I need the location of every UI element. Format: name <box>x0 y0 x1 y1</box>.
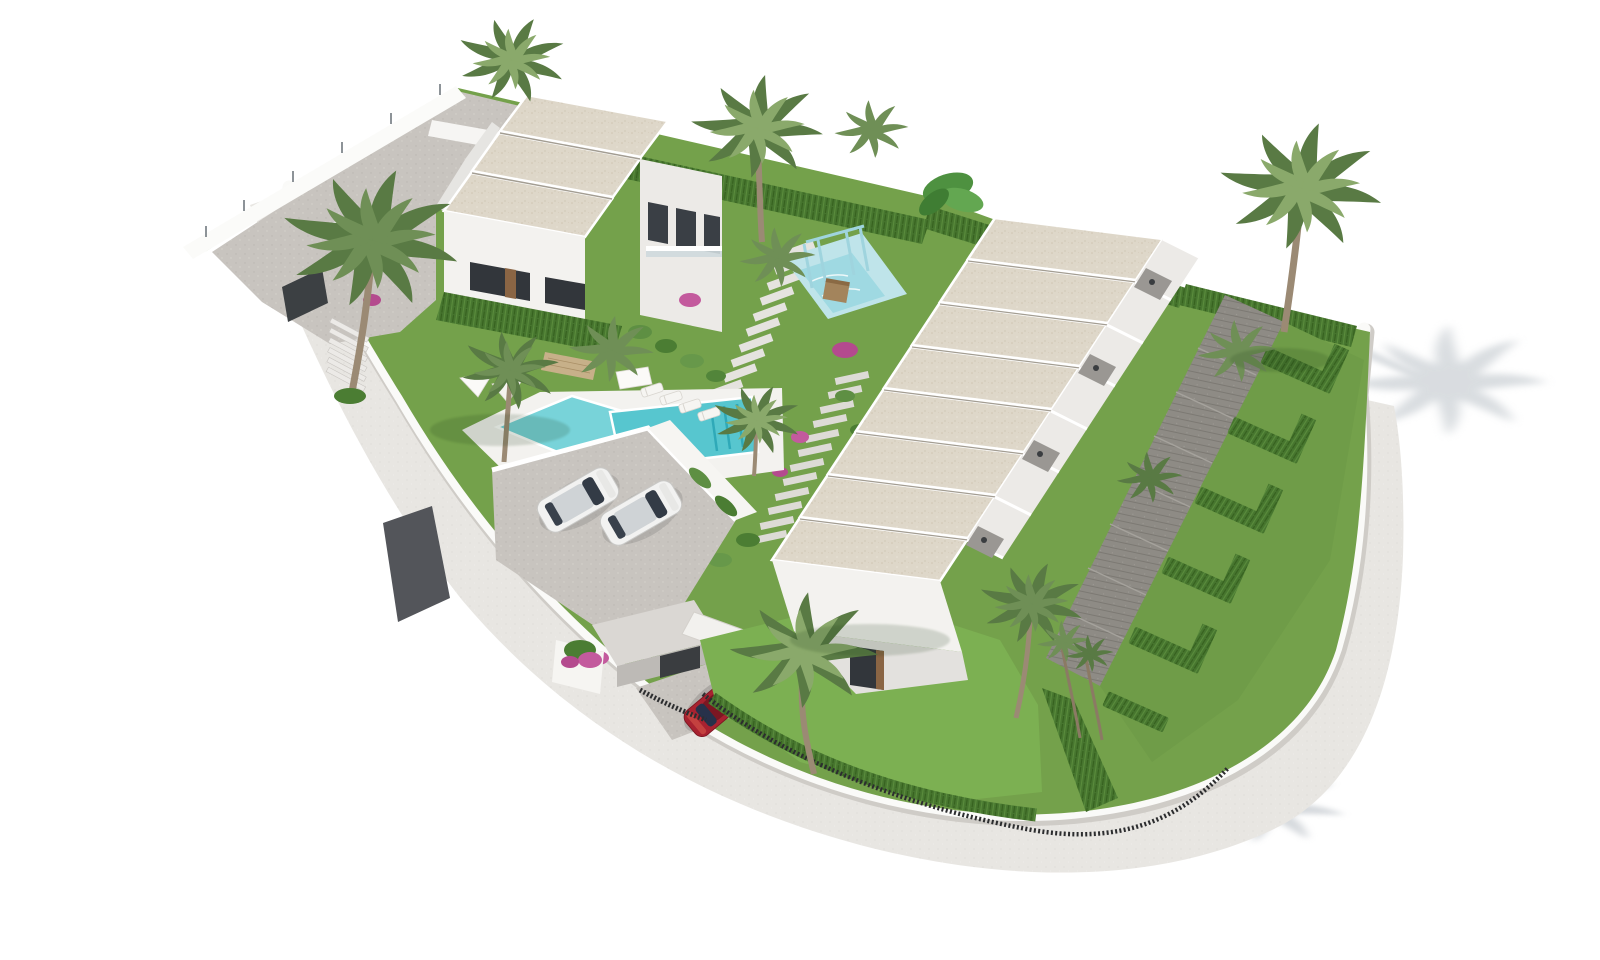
palm-large-right <box>1201 104 1403 268</box>
play-tower <box>823 278 850 303</box>
rendering-stage <box>0 0 1600 960</box>
end-window-wood <box>876 650 884 690</box>
villa-door-wood <box>505 268 516 299</box>
palm-small-top <box>835 100 909 158</box>
render-canvas <box>0 0 1600 960</box>
